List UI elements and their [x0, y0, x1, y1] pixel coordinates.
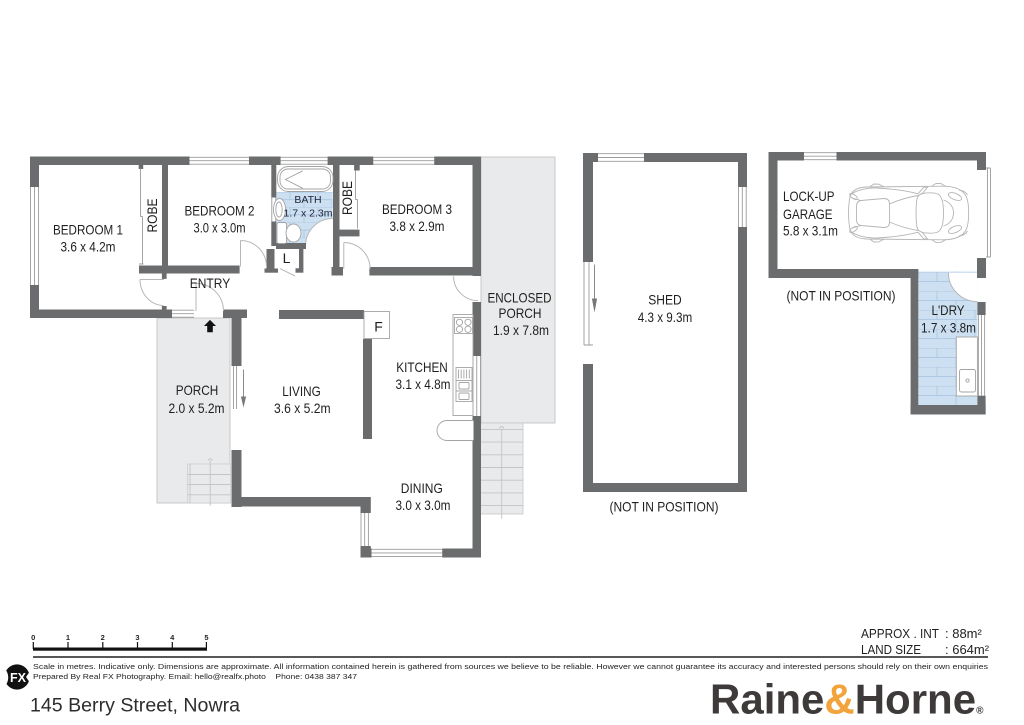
svg-text:BATH: BATH: [294, 194, 321, 206]
svg-text:5: 5: [204, 633, 208, 642]
svg-text:PORCH: PORCH: [176, 382, 219, 398]
svg-text:1: 1: [66, 633, 70, 642]
svg-text:3.0 x 3.0m: 3.0 x 3.0m: [194, 220, 246, 236]
svg-text:LOCK-UP: LOCK-UP: [783, 188, 835, 204]
svg-text:1.7 x 2.3m: 1.7 x 2.3m: [283, 208, 332, 220]
svg-text:SHED: SHED: [648, 292, 682, 308]
svg-text:LAND SIZE: LAND SIZE: [861, 642, 921, 657]
svg-text:5.8 x 3.1m: 5.8 x 3.1m: [783, 223, 838, 239]
svg-text:L: L: [283, 250, 291, 266]
svg-text:1.9 x 7.8m: 1.9 x 7.8m: [493, 322, 549, 338]
svg-text:FX: FX: [10, 671, 27, 685]
svg-text:(NOT IN POSITION): (NOT IN POSITION): [610, 499, 719, 515]
svg-text:3.1 x 4.8m: 3.1 x 4.8m: [396, 376, 451, 392]
svg-text:145 Berry Street, Nowra: 145 Berry Street, Nowra: [30, 696, 240, 717]
svg-text:Prepared By Real FX Photograph: Prepared By Real FX Photography. Email: …: [33, 672, 357, 681]
svg-text:1.7 x 3.8m: 1.7 x 3.8m: [921, 320, 976, 336]
svg-text:: 664m²: : 664m²: [945, 642, 990, 657]
svg-text:BEDROOM 2: BEDROOM 2: [185, 203, 255, 219]
svg-text:KITCHEN: KITCHEN: [396, 359, 448, 375]
svg-text:APPROX . INT: APPROX . INT: [861, 626, 939, 641]
svg-text:4.3 x 9.3m: 4.3 x 9.3m: [638, 309, 693, 325]
svg-text:: 88m²: : 88m²: [945, 626, 983, 641]
svg-text:BEDROOM 3: BEDROOM 3: [382, 201, 452, 217]
svg-text:F: F: [374, 319, 383, 335]
svg-text:Scale in metres. Indicative on: Scale in metres. Indicative only. Dimens…: [33, 662, 988, 671]
svg-text:ROBE: ROBE: [144, 199, 160, 233]
svg-text:GARAGE: GARAGE: [783, 206, 833, 222]
svg-text:LIVING: LIVING: [282, 383, 321, 399]
svg-text:3.6 x 4.2m: 3.6 x 4.2m: [61, 239, 116, 255]
svg-text:ROBE: ROBE: [339, 181, 355, 215]
svg-text:3: 3: [135, 633, 139, 642]
svg-text:L'DRY: L'DRY: [932, 302, 966, 318]
svg-text:0: 0: [31, 633, 35, 642]
svg-text:3.0 x 3.0m: 3.0 x 3.0m: [396, 497, 451, 513]
svg-text:BEDROOM 1: BEDROOM 1: [53, 222, 123, 238]
svg-text:ENTRY: ENTRY: [190, 275, 231, 291]
svg-text:PORCH: PORCH: [499, 305, 542, 321]
svg-text:3.6 x 5.2m: 3.6 x 5.2m: [274, 400, 331, 416]
svg-text:ENCLOSED: ENCLOSED: [488, 290, 552, 306]
svg-text:2: 2: [101, 633, 105, 642]
svg-text:Raine&Horne®: Raine&Horne®: [710, 676, 984, 723]
svg-text:3.8 x 2.9m: 3.8 x 2.9m: [390, 218, 445, 234]
svg-text:2.0 x 5.2m: 2.0 x 5.2m: [169, 400, 225, 416]
svg-text:(NOT IN POSITION): (NOT IN POSITION): [787, 288, 896, 304]
svg-text:DINING: DINING: [401, 480, 443, 496]
